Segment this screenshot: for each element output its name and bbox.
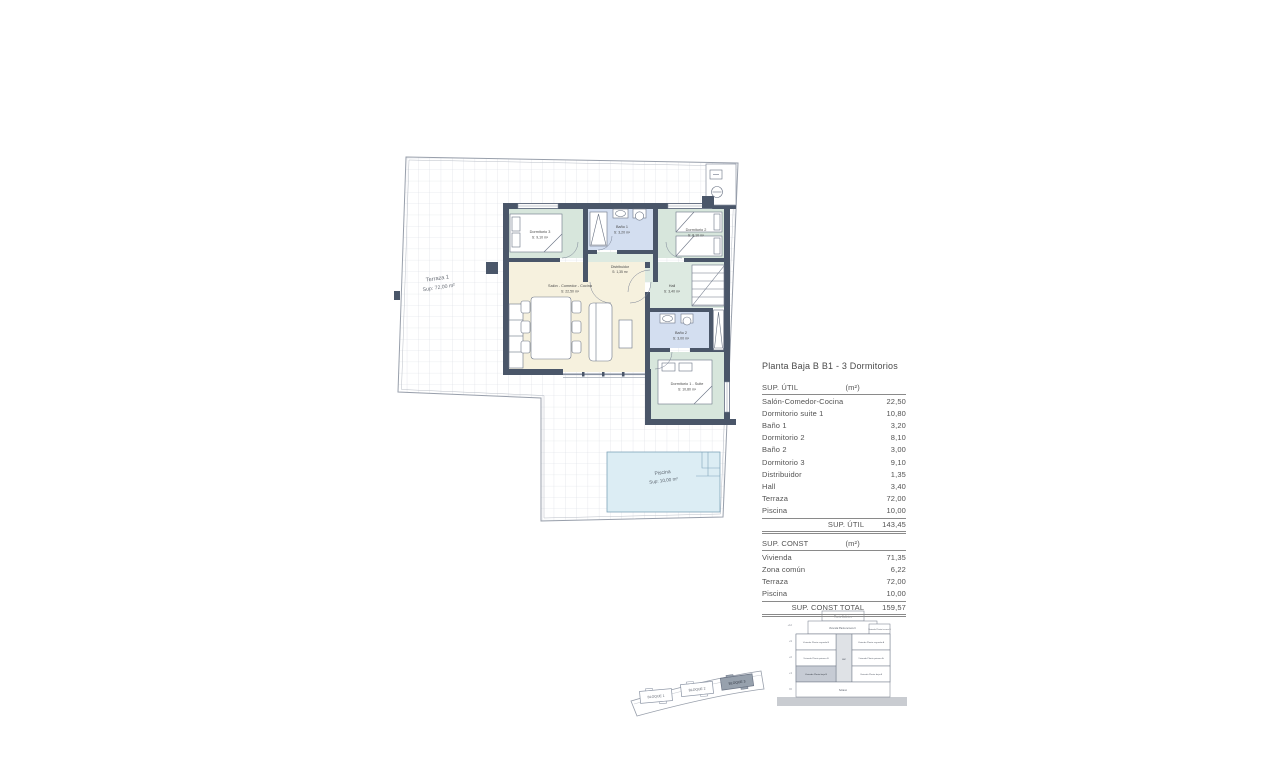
table-row: Terraza72,00 [762,575,906,587]
table-row: Dormitorio suite 110,80 [762,407,906,419]
label-hall: Hall [669,284,676,288]
table-row: Baño 13,20 [762,419,906,431]
svg-text:S: 9,10 m²: S: 9,10 m² [532,236,549,240]
coffee-table [619,320,632,348]
sup-util-total-row: SUP. ÚTIL143,45 [762,518,906,532]
svg-text:Vivienda Planta baja B: Vivienda Planta baja B [805,673,828,676]
svg-text:+3: +3 [789,671,793,675]
stairs [692,265,724,306]
area-tables-panel: Planta Baja B B1 - 3 Dormitorios SUP. ÚT… [762,361,906,534]
label-dormitorio3: Dormitorio 3 [530,230,551,234]
room-salon [507,262,645,372]
svg-text:S: 10,80 m²: S: 10,80 m² [678,388,697,392]
table-row: Distribuidor1,35 [762,468,906,480]
svg-text:Vivienda Planta tercera C: Vivienda Planta tercera C [829,627,856,630]
svg-text:Vivienda Planta tercera B: Vivienda Planta tercera B [868,628,891,631]
double-rule [762,533,906,534]
svg-text:S: 8,10 m²: S: 8,10 m² [688,234,705,238]
site-key-plan: BLOQUE 1 BLOQUE 2 BLOQUE 3 [631,671,764,716]
svg-text:+6: +6 [789,655,793,659]
table-row: Dormitorio 28,10 [762,432,906,444]
svg-text:S: 3,40 m²: S: 3,40 m² [664,290,681,294]
table-row: Piscina10,00 [762,505,906,517]
table-row: Salón-Comedor-Cocina22,50 [762,395,906,407]
page-title: Planta Baja B B1 - 3 Dormitorios [762,361,906,371]
svg-text:+12: +12 [788,623,793,627]
label-suite: Dormitorio 1 - Suite [671,382,704,386]
svg-text:S: 3,20 m²: S: 3,20 m² [614,231,631,235]
boundary-marker [394,291,400,300]
svg-text:S: 3,00 m²: S: 3,00 m² [673,337,690,341]
svg-text:+9: +9 [789,639,793,643]
pool: Piscina Sup: 10,00 m² [607,452,720,512]
section-sotano-label: Sótano [839,688,848,692]
sup-util-table: SUP. ÚTIL (m²) Salón-Comedor-Cocina22,50… [762,382,906,534]
svg-text:Vivienda Planta segunda A: Vivienda Planta segunda A [858,641,885,644]
building-section-diagram: Planta Solárium Vivienda Planta tercera … [777,611,907,706]
unit-label: (m²) [846,383,860,392]
svg-text:Vivienda Planta baja A: Vivienda Planta baja A [860,673,882,676]
dining-table [531,297,571,359]
table-row: Hall3,40 [762,480,906,492]
svg-text:Vivienda Planta primera B: Vivienda Planta primera B [803,657,829,660]
label-dormitorio2: Dormitorio 2 [686,228,707,232]
label-bano1: Baño 1 [616,225,628,229]
double-rule [762,616,906,617]
table-row: Terraza72,00 [762,493,906,505]
sup-const-total-row: SUP. CONST TOTAL159,57 [762,601,906,615]
unit-label: (m²) [846,539,860,548]
ground [777,697,907,706]
table-row: Zona común6,22 [762,563,906,575]
table-row: Baño 23,00 [762,444,906,456]
sofa [589,303,612,361]
sup-const-table: SUP. CONST (m²) Vivienda71,35 Zona común… [762,538,906,617]
table-row: Vivienda71,35 [762,551,906,563]
svg-text:Vivienda Planta primera A: Vivienda Planta primera A [858,657,884,660]
label-salon: Salón - Comedor - Cocina [548,284,593,288]
elevation-marks: +12 +9 +6 +3 ±0 [788,623,793,691]
svg-text:±0: ±0 [789,687,792,691]
sup-util-header: SUP. ÚTIL (m²) [762,382,906,395]
sup-const-header: SUP. CONST (m²) [762,538,906,551]
floor-plan-drawing: Piscina Sup: 10,00 m² Terraza 1 Sup: 72,… [0,0,1280,768]
label-bano2: Baño 2 [675,331,687,335]
svg-text:S: 1,35 m²: S: 1,35 m² [612,270,629,274]
table-row: Dormitorio 39,10 [762,456,906,468]
svg-text:S: 22,50 m²: S: 22,50 m² [561,290,580,294]
sup-const-panel: SUP. CONST (m²) Vivienda71,35 Zona común… [762,538,906,617]
utility-closet [702,164,736,208]
svg-text:Vivienda Planta segunda B: Vivienda Planta segunda B [803,641,830,644]
table-row: Piscina10,00 [762,588,906,600]
drawing-sheet: Piscina Sup: 10,00 m² Terraza 1 Sup: 72,… [0,0,1280,768]
label-distribuidor: Distribuidor [611,265,630,269]
